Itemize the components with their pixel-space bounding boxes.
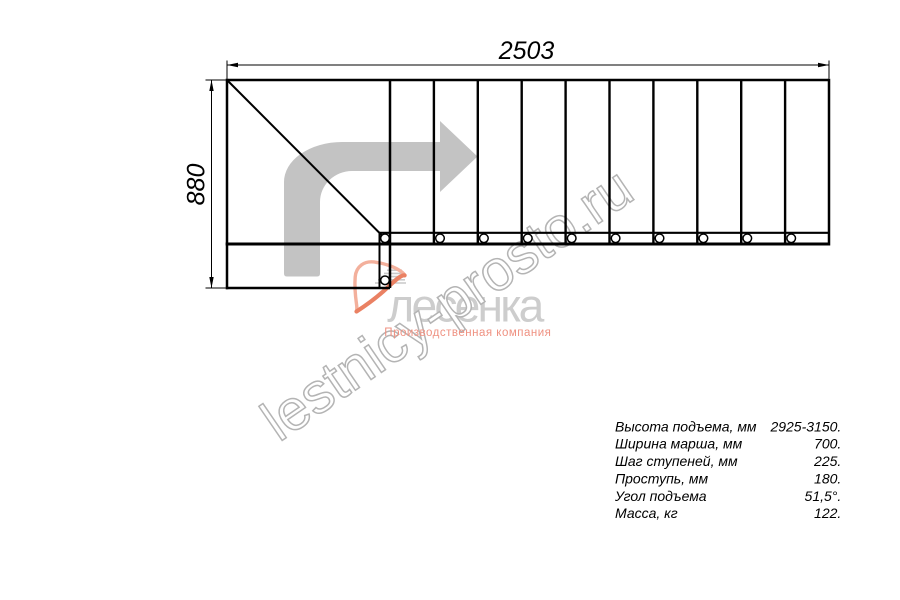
- svg-text:225.: 225.: [813, 453, 841, 469]
- svg-text:Шаг ступеней, мм: Шаг ступеней, мм: [615, 453, 738, 469]
- svg-text:880: 880: [183, 164, 211, 206]
- svg-text:51,5°.: 51,5°.: [805, 488, 842, 504]
- svg-text:Высота подъема, мм: Высота подъема, мм: [615, 418, 757, 434]
- svg-text:180.: 180.: [814, 470, 841, 486]
- svg-text:2925-3150.: 2925-3150.: [769, 418, 841, 434]
- svg-text:Ширина марша, мм: Ширина марша, мм: [615, 436, 743, 452]
- svg-text:Угол подъема: Угол подъема: [614, 488, 707, 504]
- svg-text:Проступь, мм: Проступь, мм: [615, 470, 709, 486]
- svg-text:122.: 122.: [814, 505, 841, 521]
- svg-text:Производственная компания: Производственная компания: [384, 327, 551, 339]
- svg-text:700.: 700.: [814, 436, 841, 452]
- svg-text:2503: 2503: [498, 37, 555, 65]
- svg-text:Масса, кг: Масса, кг: [615, 505, 678, 521]
